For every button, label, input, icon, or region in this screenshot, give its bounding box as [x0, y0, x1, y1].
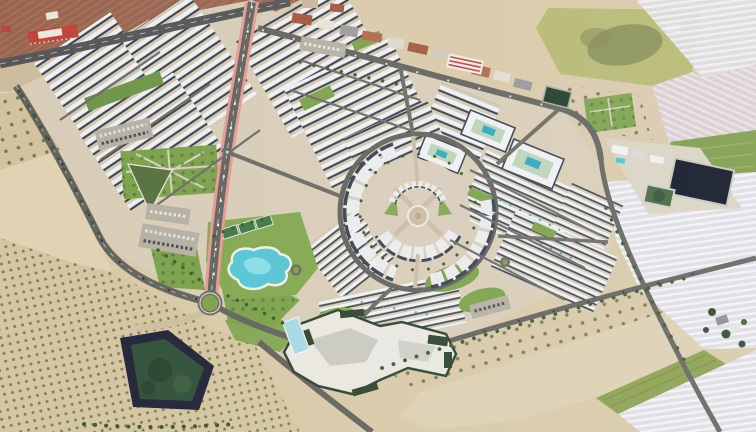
aerial-scene [0, 0, 756, 432]
lighting-sheen [0, 0, 756, 432]
aerial-photo-canvas [0, 0, 756, 432]
